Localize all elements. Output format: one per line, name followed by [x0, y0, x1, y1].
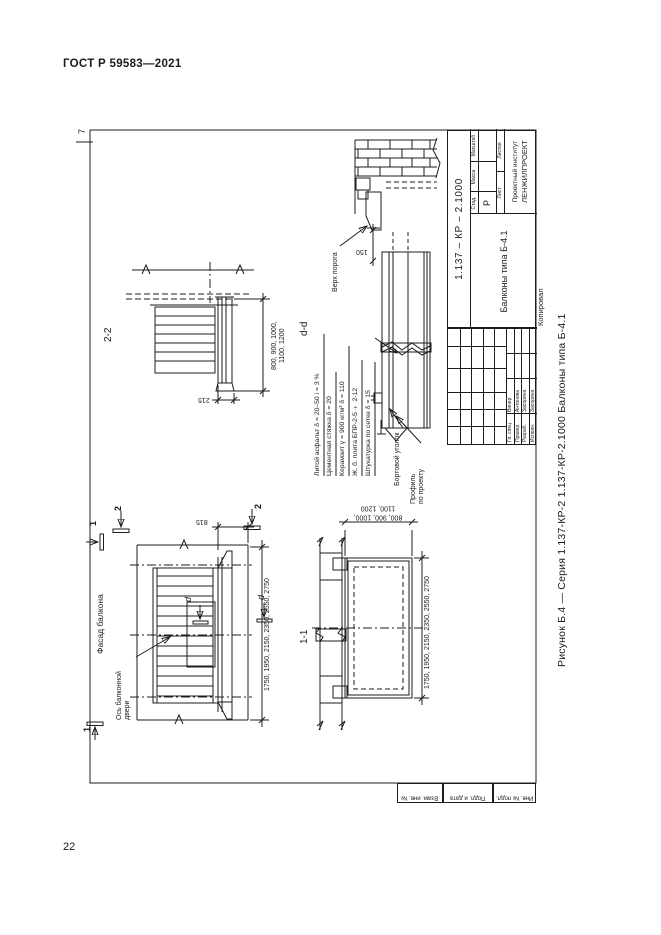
detail-d-d-label: d-d — [299, 306, 311, 336]
axis-offset-dim: 815 — [196, 518, 208, 525]
figure-caption: Рисунок Б.4 — Серия 1.137-КР-2 1.137-КР-… — [556, 278, 568, 702]
organization-line2: ЛЕНЖИЛПРОЕКТ — [520, 140, 529, 203]
scale-header: Масштаб — [470, 129, 478, 162]
plan-depth-dim: 800, 900, 1000, 1100, 1200 — [342, 503, 414, 521]
stamp-vzam-inv: Взам. инв. № — [397, 783, 443, 803]
drawing-designation: 1.137 – КР – 2.1000 — [448, 129, 470, 329]
signatory-role-1: Провер. — [514, 414, 522, 444]
facade-width-dim: 1750, 1950, 2150, 2350, 2550, 2750 — [264, 552, 272, 718]
signatory-role-3: Исполн. — [529, 414, 537, 444]
section-2-2-height-dim: 800, 900, 1000, 1100, 1200 — [271, 296, 287, 396]
edge-angle-label: Бортовой уголок — [394, 422, 402, 486]
signatory-name-1: Антонова — [514, 379, 522, 414]
section-mark-1-top: 1 — [88, 521, 98, 526]
signatory-role-2: Разраб. — [521, 414, 529, 444]
signatory-name-3: Засорина — [529, 379, 537, 414]
sheet-header: Лист — [496, 172, 504, 214]
threshold-dim-150: 150 — [356, 248, 368, 255]
page-number: 22 — [63, 841, 75, 853]
detail-mark-d-left: d — [183, 597, 193, 602]
edge-profile-label: Профиль по проекту — [410, 436, 426, 504]
threshold-top-label: Верх порога — [332, 240, 340, 292]
frame-corner-number: 7 — [77, 129, 87, 134]
layer-label-plaster: Штукатурка по сетке δ = 15 — [365, 362, 373, 476]
organization-line1: Проектный институт — [512, 141, 520, 202]
mass-header: Масса — [470, 162, 478, 192]
copied-by-label: Копировал — [537, 266, 546, 326]
layer-label-slab: Ж. б. плита БПР-2-5 ÷ 2-12 — [352, 360, 360, 476]
layer-label-asphalt: Литой асфальт δ = 20–50 i = 3 % — [314, 334, 322, 476]
signatory-name-2: Засорина — [521, 379, 529, 414]
section-mark-2-right: 2 — [253, 504, 263, 509]
document-page: ГОСТ Р 59583—2021 22 7 2-2 800, 900, 100… — [0, 0, 661, 935]
sheets-header: Листов — [496, 129, 504, 172]
drawing-title: Балконы типа Б-4.1 — [470, 214, 537, 329]
section-mark-1-bottom: 1 — [82, 727, 92, 732]
layer-label-keramzit: Керамзит γ = 900 кг/м³ δ = 110 — [339, 346, 347, 476]
signatory-role-0: Гл. спец. — [506, 414, 514, 444]
organization-cell: Проектный институт ЛЕНЖИЛПРОЕКТ — [504, 129, 537, 214]
stamp-inv-podl: Инв. № подл. — [493, 783, 536, 803]
detail-mark-d-right: d — [256, 595, 266, 600]
section-2-2-edge-dim: 215 — [198, 396, 210, 403]
signatory-name-0: Винер — [506, 379, 514, 414]
stage-value: Р — [478, 192, 496, 214]
section-2-2-label: 2-2 — [103, 308, 115, 342]
section-mark-2-left: 2 — [113, 506, 123, 511]
layer-label-screed: Цементная стяжка δ = 20 — [326, 372, 334, 476]
plan-width-dim: 1750, 1950, 2150, 2350, 2550, 2750 — [424, 560, 432, 706]
facade-title: Фасад балкона — [96, 588, 106, 654]
doc-standard-header: ГОСТ Р 59583—2021 — [63, 58, 182, 70]
door-axis-label: Ось балконной двери — [116, 640, 132, 720]
title-block: 1.137 – КР – 2.1000 Балконы типа Б-4.1 С… — [447, 130, 536, 445]
title-block-table: 1.137 – КР – 2.1000 Балконы типа Б-4.1 С… — [447, 130, 536, 445]
plan-1-1-label: 1-1 — [299, 614, 311, 644]
stage-header: Стад. — [470, 192, 478, 214]
stamp-podp-data: Подп. и дата — [443, 783, 493, 803]
